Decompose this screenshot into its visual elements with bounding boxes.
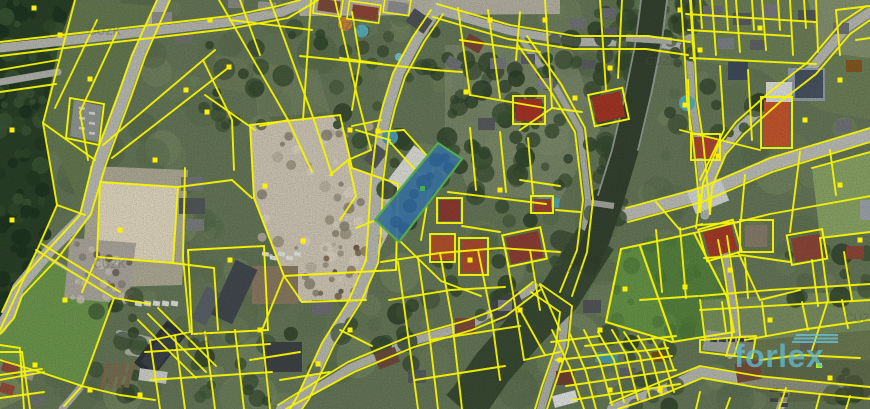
- svg-text:ČÚZK: ČÚZK: [645, 53, 679, 68]
- svg-text:ČÚZK: ČÚZK: [550, 260, 584, 275]
- svg-text:forlex: forlex: [734, 338, 824, 374]
- svg-text:ČÚZK: ČÚZK: [845, 310, 870, 325]
- svg-text:ČÚZK: ČÚZK: [183, 330, 217, 345]
- svg-text:ČÚZK: ČÚZK: [327, 18, 361, 33]
- svg-text:ČÚZK: ČÚZK: [93, 256, 127, 271]
- svg-text:ČÚZK: ČÚZK: [88, 23, 122, 38]
